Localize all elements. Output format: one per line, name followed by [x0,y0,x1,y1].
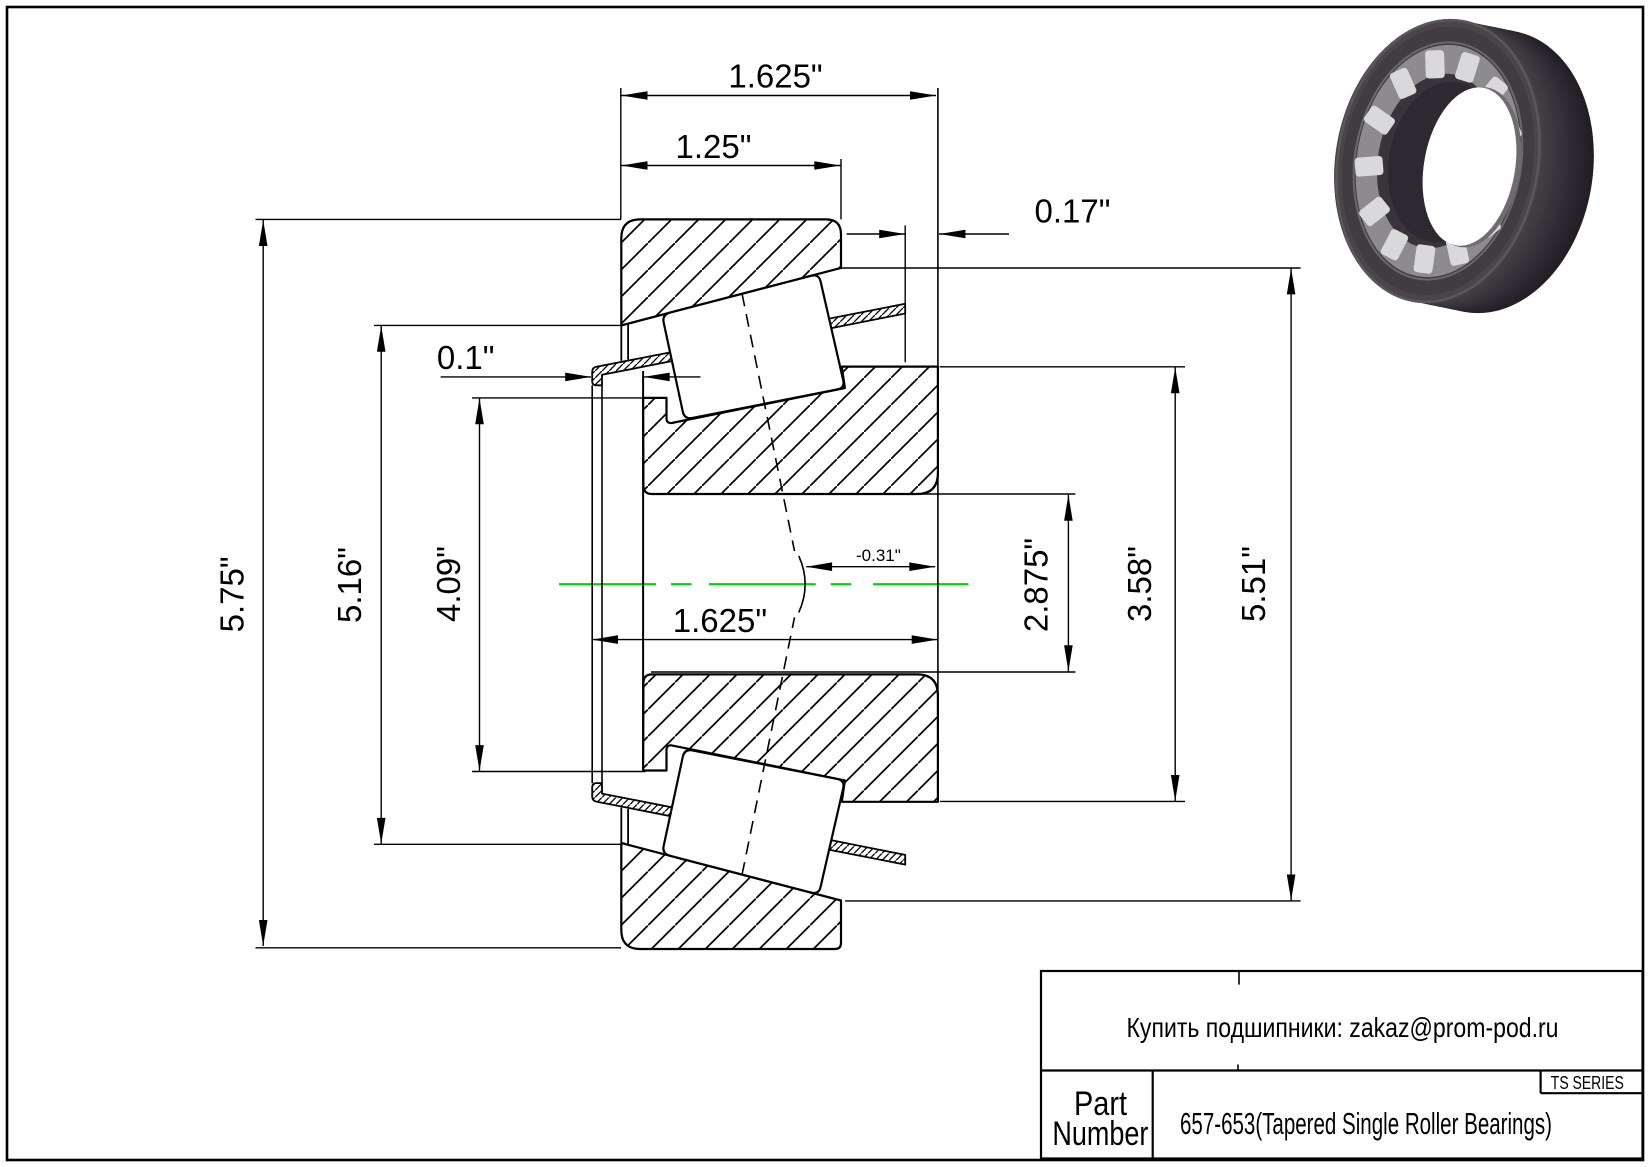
svg-text:5.16": 5.16" [331,547,368,623]
svg-text:Number: Number [1052,1115,1148,1153]
svg-text:TS SERIES: TS SERIES [1551,1073,1624,1093]
svg-text:3.58": 3.58" [1121,546,1158,622]
svg-text:1.625": 1.625" [673,602,767,639]
svg-text:2.875": 2.875" [1018,538,1055,632]
svg-text:1.25": 1.25" [676,128,752,165]
svg-text:5.51": 5.51" [1235,546,1272,622]
svg-text:0.17": 0.17" [1035,193,1111,230]
svg-text:4.09": 4.09" [430,546,467,622]
svg-text:Купить подшипники: zakaz@prom-: Купить подшипники: zakaz@prom-pod.ru [1127,1012,1559,1043]
svg-text:1.625": 1.625" [728,58,822,95]
svg-text:0.1": 0.1" [437,339,495,376]
svg-text:5.75": 5.75" [214,556,251,632]
svg-text:657-653(Tapered Single Roller: 657-653(Tapered Single Roller Bearings) [1180,1106,1552,1141]
svg-text:-0.31": -0.31" [856,546,901,565]
